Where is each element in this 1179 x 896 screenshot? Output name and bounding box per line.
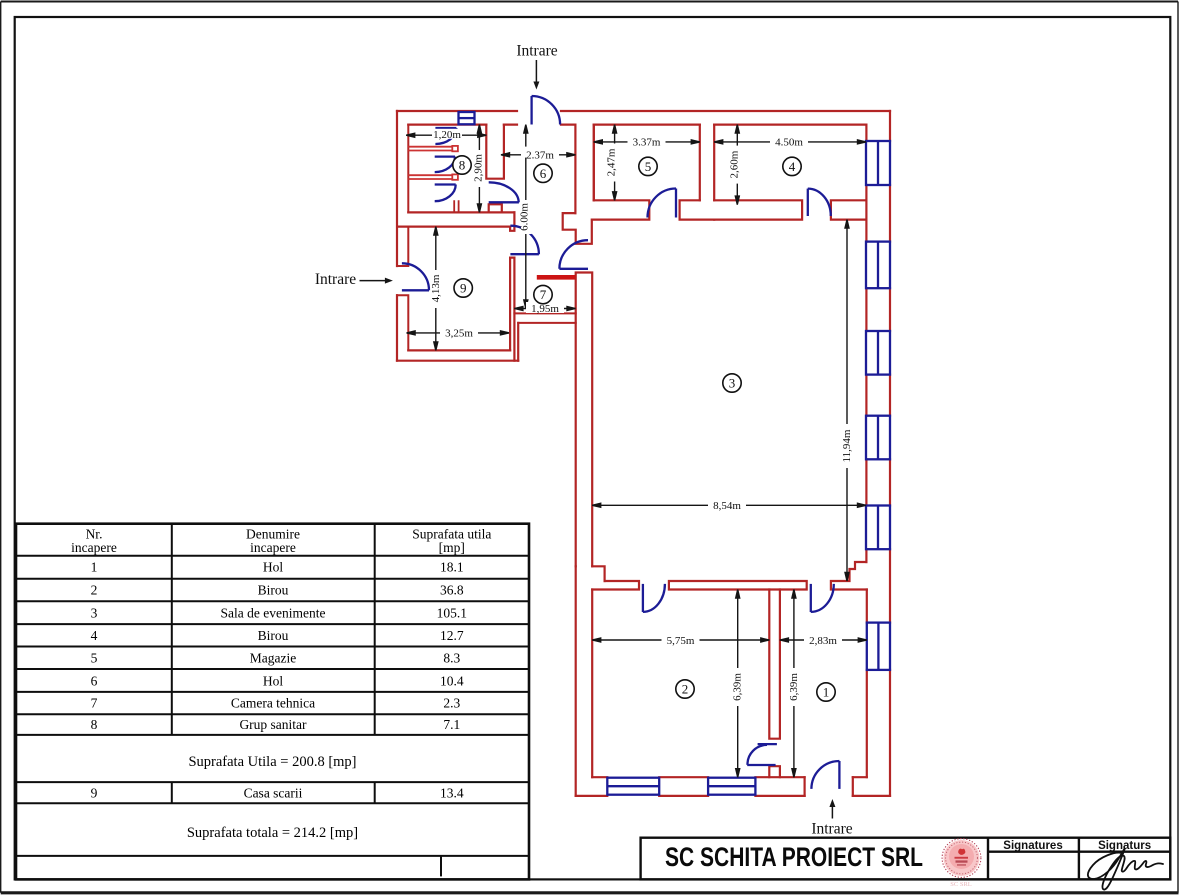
- svg-text:Suprafata Utila = 200.8 [mp]: Suprafata Utila = 200.8 [mp]: [188, 754, 356, 770]
- svg-text:13.4: 13.4: [440, 786, 464, 801]
- svg-text:2: 2: [682, 682, 689, 697]
- svg-text:incapere: incapere: [250, 540, 296, 555]
- svg-text:9: 9: [460, 281, 467, 296]
- svg-text:Birou: Birou: [258, 583, 289, 598]
- svg-text:incapere: incapere: [71, 540, 117, 555]
- svg-text:6,39m: 6,39m: [732, 673, 744, 701]
- svg-text:18.1: 18.1: [440, 560, 464, 575]
- svg-text:Camera tehnica: Camera tehnica: [231, 696, 315, 711]
- svg-text:4: 4: [91, 628, 98, 643]
- svg-text:Casa scarii: Casa scarii: [244, 786, 303, 801]
- svg-text:4: 4: [789, 159, 796, 174]
- svg-text:SC SRL: SC SRL: [950, 881, 972, 888]
- svg-text:2,90m: 2,90m: [473, 154, 485, 182]
- svg-text:Intrare: Intrare: [315, 271, 356, 288]
- svg-text:2,47m: 2,47m: [606, 148, 618, 176]
- svg-text:Grup sanitar: Grup sanitar: [239, 717, 307, 732]
- svg-text:2.3: 2.3: [443, 696, 460, 711]
- svg-text:6,39m: 6,39m: [788, 673, 800, 701]
- svg-text:Birou: Birou: [258, 628, 289, 643]
- svg-text:4.50m: 4.50m: [775, 136, 803, 148]
- svg-text:7: 7: [540, 287, 547, 302]
- svg-text:Magazie: Magazie: [250, 651, 296, 666]
- svg-text:[mp]: [mp]: [439, 540, 465, 555]
- svg-text:6.00m: 6.00m: [519, 203, 531, 231]
- svg-text:5,75m: 5,75m: [667, 635, 695, 647]
- svg-text:5: 5: [645, 159, 652, 174]
- svg-text:1: 1: [91, 560, 98, 575]
- svg-text:2: 2: [91, 583, 98, 598]
- svg-text:Intrare: Intrare: [811, 821, 852, 838]
- svg-text:Intrare: Intrare: [516, 43, 557, 60]
- svg-text:Sala de evenimente: Sala de evenimente: [221, 606, 326, 621]
- svg-text:1,20m: 1,20m: [433, 129, 461, 141]
- svg-text:6: 6: [91, 674, 98, 689]
- svg-text:5: 5: [91, 651, 98, 666]
- svg-text:3,25m: 3,25m: [445, 327, 473, 339]
- svg-text:8,54m: 8,54m: [713, 500, 741, 512]
- svg-text:Suprafata totala = 214.2 [mp]: Suprafata totala = 214.2 [mp]: [187, 825, 358, 841]
- svg-text:3.37m: 3.37m: [633, 136, 661, 148]
- svg-text:4,13m: 4,13m: [430, 274, 442, 302]
- svg-text:3: 3: [91, 606, 98, 621]
- svg-text:Hol: Hol: [263, 674, 283, 689]
- svg-text:1: 1: [823, 685, 830, 700]
- svg-text:2.37m: 2.37m: [526, 149, 554, 161]
- svg-text:3: 3: [729, 376, 736, 391]
- svg-text:Signatures: Signatures: [1003, 840, 1062, 852]
- svg-text:2,60m: 2,60m: [728, 150, 740, 178]
- svg-text:2,83m: 2,83m: [809, 635, 837, 647]
- svg-text:Hol: Hol: [263, 560, 283, 575]
- svg-text:8: 8: [91, 717, 98, 732]
- svg-text:105.1: 105.1: [437, 606, 467, 621]
- svg-text:6: 6: [540, 166, 547, 181]
- svg-text:SC SCHITA PROIECT SRL: SC SCHITA PROIECT SRL: [665, 842, 923, 872]
- svg-text:9: 9: [91, 786, 98, 801]
- svg-text:10.4: 10.4: [440, 674, 464, 689]
- svg-text:8.3: 8.3: [443, 651, 460, 666]
- svg-text:1,95m: 1,95m: [531, 303, 559, 315]
- svg-text:7.1: 7.1: [443, 717, 460, 732]
- svg-text:8: 8: [459, 158, 466, 173]
- svg-text:36.8: 36.8: [440, 583, 464, 598]
- svg-text:11,94m: 11,94m: [841, 429, 853, 462]
- svg-text:12.7: 12.7: [440, 628, 464, 643]
- svg-text:7: 7: [91, 696, 98, 711]
